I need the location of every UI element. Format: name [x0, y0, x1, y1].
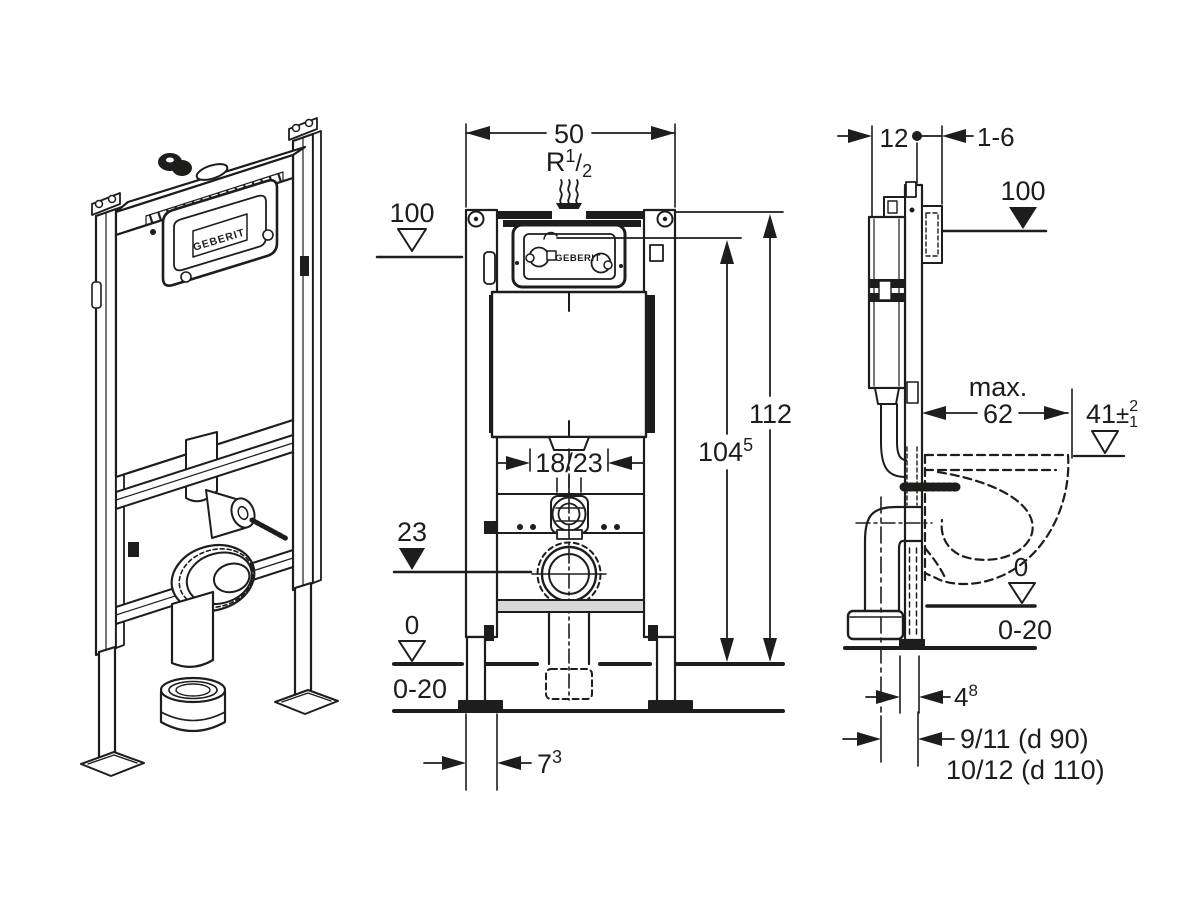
side-dim-outlet-diameter: 9/11 (d 90) 10/12 (d 110) — [843, 712, 1105, 785]
front-right-foot — [648, 700, 693, 710]
side-plate-height-label: 100 — [1000, 176, 1045, 206]
front-total-height-label: 112 — [749, 399, 792, 429]
level-filled-triangle-icon — [399, 548, 425, 570]
level-open-triangle-icon — [398, 229, 426, 251]
front-left-foot — [458, 700, 503, 710]
side-zero-label: 0 — [1014, 552, 1028, 582]
side-rail — [905, 185, 922, 640]
front-level-zero: 0 — [399, 610, 425, 661]
persp-right-leg — [295, 583, 311, 705]
side-wall-thickness-label: 1-6 — [977, 122, 1015, 152]
side-dim-bowl-depth: max. 62 — [922, 372, 1072, 458]
front-plate-height-label: 100 — [389, 198, 434, 228]
side-level-bowl-height: 41±21 — [1074, 398, 1138, 456]
side-dim-outlet-offset: 48 — [866, 656, 978, 713]
front-level-outlet-height: 23 — [394, 517, 531, 572]
front-supply-thread-label: R1/2 — [546, 146, 592, 181]
persp-rail-clip — [300, 256, 309, 276]
side-frame-depth-label: 12 — [880, 123, 909, 153]
side-bowl-height-label: 41±21 — [1086, 398, 1138, 431]
side-toilet-bowl-outline — [925, 455, 1068, 585]
front-width-label: 50 — [554, 119, 584, 149]
side-bowl-depth-label: 62 — [983, 399, 1013, 429]
front-dim-foot-depth: 73 — [424, 714, 562, 790]
front-foot-depth-label: 73 — [537, 747, 562, 779]
side-outlet-d90-label: 9/11 (d 90) — [960, 724, 1089, 754]
drawing-svg: GEBERIT 50 R1/2 — [0, 0, 1200, 900]
technical-drawing: GEBERIT 50 R1/2 — [0, 0, 1200, 900]
persp-drain-pipe — [172, 592, 213, 667]
persp-shutoff-rod — [252, 520, 287, 539]
side-outlet-offset-label: 48 — [954, 681, 978, 712]
front-view: 50 R1/2 100 GEBERIT — [377, 119, 792, 790]
perspective-view: GEBERIT — [81, 118, 338, 776]
side-outlet-d110-label: 10/12 (d 110) — [946, 755, 1105, 785]
centerline-dot-icon — [912, 131, 922, 141]
side-cistern — [869, 197, 905, 404]
front-actuator-height-label: 1045 — [698, 435, 753, 467]
persp-supply-elbow — [206, 490, 287, 539]
front-outlet-flange — [532, 449, 606, 700]
side-floor-range-label: 0-20 — [998, 615, 1052, 645]
side-dim-depth: 12 1-6 — [838, 122, 1015, 218]
front-right-leg — [657, 637, 675, 703]
supply-steam-icon — [560, 180, 562, 203]
persp-drain-socket — [161, 678, 225, 731]
persp-supply-knob — [158, 153, 192, 176]
front-cistern — [492, 292, 646, 437]
level-open-triangle-icon — [1009, 583, 1035, 603]
front-left-leg — [467, 637, 485, 703]
front-lower-crossbar — [497, 600, 644, 612]
side-flush-plate — [922, 206, 942, 263]
persp-left-leg — [99, 647, 115, 767]
side-view: 12 1-6 100 — [838, 122, 1138, 785]
front-outlet-height-label: 23 — [397, 517, 427, 547]
front-access-box: GEBERIT — [513, 225, 625, 287]
level-open-triangle-icon — [399, 641, 425, 661]
level-open-triangle-icon — [1092, 431, 1118, 453]
level-filled-triangle-icon — [1009, 207, 1037, 229]
side-max-label: max. — [969, 372, 1028, 402]
front-dim-supply-offset: 18/23 — [497, 448, 643, 498]
front-floor-range-label: 0-20 — [393, 674, 447, 704]
front-zero-label: 0 — [405, 610, 419, 640]
front-level-plate-height: 100 — [377, 198, 462, 257]
front-geberit-logo: GEBERIT — [555, 253, 601, 264]
